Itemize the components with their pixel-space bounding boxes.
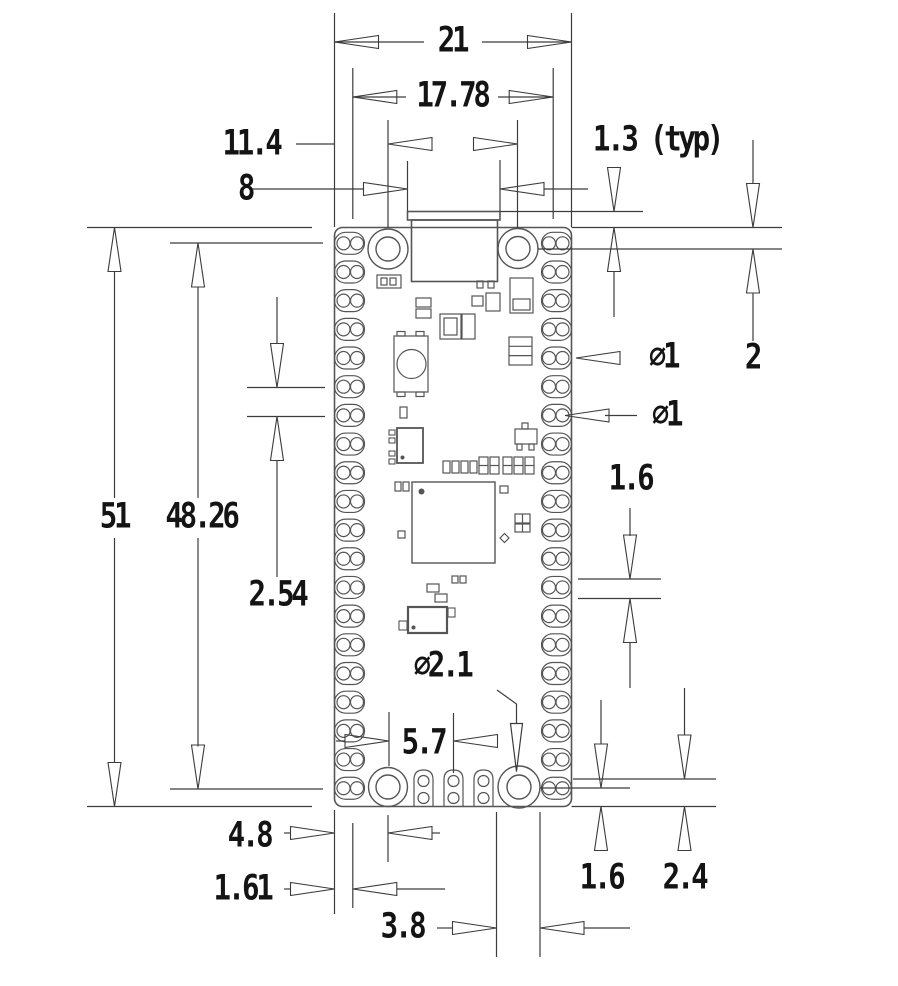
arrowhead — [388, 138, 432, 151]
crystal — [399, 607, 455, 633]
arrowhead — [192, 745, 205, 789]
dim-bottom-offset-inner: 1.6 — [580, 861, 623, 896]
mounting-hole-bottom-right — [498, 766, 540, 808]
dim-board-width: 21 — [438, 24, 467, 59]
arrowhead — [192, 243, 205, 287]
arrowhead — [608, 168, 621, 212]
dim-board-length: 51 — [100, 500, 129, 535]
arrowhead — [678, 735, 691, 779]
resistor — [416, 309, 431, 318]
dim-bottom-hole-x: 4.8 — [228, 819, 271, 854]
mounting-hole-top-right — [498, 229, 538, 269]
small-part — [460, 576, 466, 583]
arrowhead — [454, 735, 498, 748]
regulator — [510, 278, 533, 313]
arrowhead — [500, 183, 544, 196]
dimension-drawing: 21 17.78 11.4 8 1.3 (typ) 2 ∅1 ∅1 1.6 51… — [0, 0, 898, 986]
arrowhead — [291, 827, 335, 840]
usb-body — [412, 220, 498, 282]
resistor — [427, 584, 439, 592]
arrowhead — [678, 807, 691, 851]
capacitor — [486, 293, 500, 311]
arrowhead — [108, 763, 121, 807]
dimension-arrowheads — [108, 36, 760, 935]
mounting-hole-bottom-left — [369, 768, 408, 807]
arrowhead — [453, 922, 497, 935]
arrowhead — [364, 183, 408, 196]
resistor — [416, 298, 431, 307]
hole-leader-line — [497, 690, 517, 724]
capacitor-bank — [509, 337, 532, 365]
passives-row — [443, 457, 534, 474]
arrowhead — [388, 827, 432, 840]
arrowhead — [474, 138, 518, 151]
dim-pad-column-span: 17.78 — [416, 79, 487, 114]
dim-castellated-hole-dia: ∅1 — [649, 340, 678, 375]
mounting-hole-top-left — [368, 229, 408, 269]
small-part — [400, 407, 407, 418]
arrowhead — [747, 184, 760, 228]
dim-mounting-hole-dia: ∅2.1 — [413, 649, 470, 684]
arrowhead — [595, 744, 608, 788]
arrowhead — [595, 807, 608, 851]
dim-usb-overhang: 1.3 (typ) — [593, 123, 721, 158]
swd-debug-pads — [414, 770, 493, 807]
arrowhead — [271, 344, 284, 388]
dim-pad-row-span: 48.26 — [165, 500, 236, 535]
arrowhead — [540, 922, 584, 935]
flash-chip — [389, 428, 423, 464]
capacitor — [472, 296, 483, 306]
arrowhead — [108, 228, 121, 272]
arrowhead — [291, 883, 335, 896]
arrowhead — [624, 535, 637, 579]
arrowhead — [747, 249, 760, 293]
dim-pad-pitch: 2.54 — [248, 578, 305, 613]
dim-pad-length: 1.6 — [609, 462, 652, 497]
board-components — [377, 275, 537, 633]
bootsel-button — [394, 332, 428, 397]
dim-debug-pad-offset: 5.7 — [402, 726, 445, 761]
usb-connector — [408, 212, 501, 282]
hole-leader-arrow — [511, 724, 523, 772]
dim-top-hole-edge-offset: 2 — [745, 341, 759, 376]
arrowhead — [271, 417, 284, 461]
dim-castellation-depth: 1.61 — [213, 872, 270, 907]
pin-pads-right — [542, 232, 572, 799]
diamond-part — [500, 534, 509, 543]
arrowhead — [624, 599, 637, 643]
resistor — [435, 594, 447, 602]
dim-bottom-pad-ring: 3.8 — [381, 910, 424, 945]
drawing-linework — [0, 0, 898, 986]
sot23-transistor — [515, 423, 537, 450]
arrowhead — [576, 352, 620, 365]
usb-lip — [408, 212, 501, 221]
dim-usb-width: 8 — [238, 172, 252, 207]
arrowhead — [345, 735, 389, 748]
dim-through-hole-dia: ∅1 — [652, 398, 681, 433]
power-inductor — [440, 314, 475, 339]
dim-top-hole-spacing: 11.4 — [222, 127, 279, 162]
dim-bottom-hole-y: 2.4 — [663, 861, 706, 896]
rp2040-chip — [395, 482, 530, 563]
small-part — [452, 576, 458, 583]
arrowhead — [353, 883, 397, 896]
pin-pads-left — [335, 232, 365, 799]
led — [377, 275, 401, 288]
